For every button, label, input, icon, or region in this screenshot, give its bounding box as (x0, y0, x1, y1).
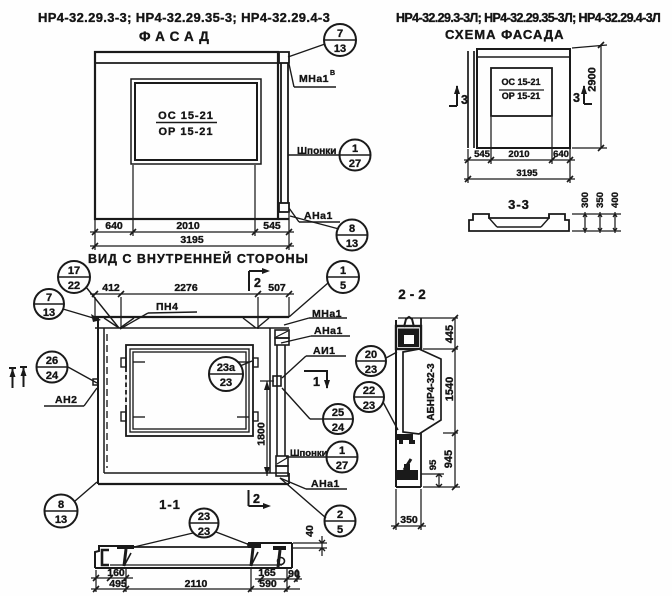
svg-text:8: 8 (349, 223, 355, 235)
svg-text:ОР 15-21: ОР 15-21 (502, 91, 541, 101)
svg-text:1-1: 1-1 (159, 497, 181, 512)
svg-text:23: 23 (198, 511, 210, 523)
svg-text:1: 1 (313, 375, 320, 389)
svg-text:23: 23 (220, 377, 232, 389)
svg-text:25: 25 (332, 407, 344, 419)
svg-text:2-2: 2-2 (398, 287, 430, 302)
svg-text:3195: 3195 (180, 234, 204, 246)
svg-text:НР4-32.29.3-3Л; НР4-32.29.35-3: НР4-32.29.3-3Л; НР4-32.29.35-3Л; НР4-32.… (396, 11, 660, 25)
svg-text:24: 24 (332, 422, 345, 434)
svg-text:1: 1 (339, 445, 345, 457)
svg-text:2110: 2110 (185, 578, 208, 590)
svg-text:1: 1 (340, 265, 346, 277)
svg-text:350: 350 (595, 192, 606, 208)
svg-text:ОС 15-21: ОС 15-21 (501, 77, 540, 87)
svg-text:2: 2 (337, 509, 343, 521)
svg-text:3: 3 (461, 93, 468, 107)
svg-text:24: 24 (46, 370, 59, 382)
svg-text:590: 590 (259, 578, 277, 590)
svg-text:23: 23 (198, 526, 210, 538)
svg-text:8: 8 (58, 499, 64, 511)
svg-text:640: 640 (105, 220, 123, 232)
svg-text:НР4-32.29.3-3; НР4-32.29.35-3;: НР4-32.29.3-3; НР4-32.29.35-3; НР4-32.29… (38, 10, 330, 25)
svg-text:27: 27 (349, 158, 361, 170)
svg-text:В: В (330, 70, 335, 77)
svg-text:507: 507 (268, 282, 286, 294)
svg-text:2010: 2010 (508, 149, 529, 160)
svg-text:ФАСАД: ФАСАД (139, 29, 214, 44)
svg-text:350: 350 (400, 514, 418, 526)
svg-text:17: 17 (68, 265, 80, 277)
svg-text:22: 22 (68, 280, 80, 292)
svg-text:АБНР4-32-3: АБНР4-32-3 (426, 363, 437, 421)
svg-text:2010: 2010 (176, 220, 200, 232)
svg-text:5: 5 (340, 280, 346, 292)
svg-text:3-3: 3-3 (508, 197, 530, 212)
svg-text:300: 300 (580, 192, 591, 208)
svg-text:40: 40 (304, 525, 316, 537)
svg-text:13: 13 (334, 43, 346, 55)
svg-text:2: 2 (254, 276, 261, 290)
svg-text:23: 23 (365, 364, 377, 376)
svg-text:АНа1: АНа1 (311, 478, 340, 490)
svg-text:26: 26 (46, 355, 58, 367)
svg-text:3: 3 (573, 91, 580, 105)
svg-text:7: 7 (46, 292, 52, 304)
svg-text:445: 445 (444, 325, 456, 343)
svg-text:3195: 3195 (516, 168, 538, 179)
svg-text:13: 13 (55, 514, 67, 526)
svg-text:22: 22 (363, 385, 375, 397)
svg-text:1800: 1800 (256, 422, 268, 446)
svg-text:400: 400 (610, 192, 621, 208)
svg-text:7: 7 (337, 28, 343, 40)
svg-text:ВИД С ВНУТРЕННЕЙ СТОРОНЫ: ВИД С ВНУТРЕННЕЙ СТОРОНЫ (88, 251, 309, 266)
svg-text:АИ1: АИ1 (313, 345, 335, 357)
svg-text:АНа1: АНа1 (314, 325, 343, 337)
svg-text:945: 945 (443, 450, 455, 468)
svg-text:412: 412 (102, 282, 120, 294)
svg-text:ОС 15-21: ОС 15-21 (158, 110, 214, 122)
svg-text:ОР 15-21: ОР 15-21 (158, 126, 213, 138)
svg-text:23: 23 (363, 400, 375, 412)
svg-text:23а: 23а (217, 362, 236, 374)
svg-text:2900: 2900 (587, 67, 599, 91)
svg-text:МНа1: МНа1 (299, 73, 329, 85)
svg-text:95: 95 (428, 459, 439, 470)
svg-text:5: 5 (337, 524, 343, 536)
svg-text:13: 13 (43, 307, 55, 319)
svg-text:545: 545 (474, 149, 491, 160)
svg-text:27: 27 (336, 460, 348, 472)
svg-text:640: 640 (553, 149, 569, 160)
svg-text:495: 495 (109, 578, 127, 590)
svg-text:АН2: АН2 (55, 394, 78, 406)
svg-text:1: 1 (352, 143, 358, 155)
svg-text:20: 20 (365, 349, 377, 361)
svg-text:2276: 2276 (174, 282, 198, 294)
svg-text:90: 90 (288, 568, 300, 580)
svg-text:ПН4: ПН4 (156, 301, 178, 313)
svg-text:13: 13 (346, 238, 358, 250)
svg-text:545: 545 (263, 220, 281, 232)
svg-text:1540: 1540 (444, 377, 456, 401)
svg-text:СХЕМА ФАСАДА: СХЕМА ФАСАДА (445, 27, 565, 42)
svg-text:2: 2 (253, 492, 260, 506)
